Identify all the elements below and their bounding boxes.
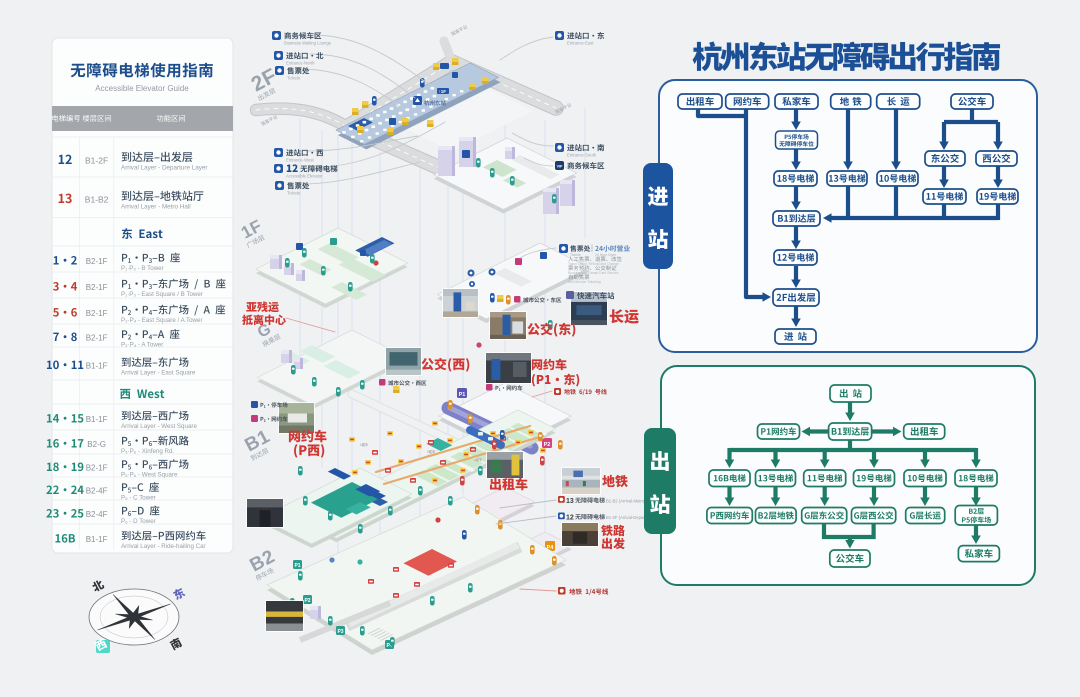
- svg-text:B1-1F: B1-1F: [86, 535, 108, 544]
- svg-text:Arrival Layer - West Square: Arrival Layer - West Square: [121, 423, 197, 430]
- svg-text:B2-1F: B2-1F: [86, 283, 108, 292]
- svg-text:Accessible Elevator: Accessible Elevator: [286, 174, 323, 179]
- svg-text:12: 12: [566, 515, 574, 522]
- svg-text:B1-1F: B1-1F: [86, 362, 108, 371]
- svg-text:Arrival Layer - Ride-hailing C: Arrival Layer - Ride-hailing Car: [121, 543, 206, 550]
- svg-text:P2: P2: [304, 598, 310, 604]
- svg-text:Arrival Layer - East Square: Arrival Layer - East Square: [121, 370, 196, 377]
- svg-text:Tickets: Tickets: [287, 191, 300, 196]
- svg-text:2候车: 2候车: [427, 449, 435, 454]
- svg-text:B2-1F: B2-1F: [86, 334, 108, 343]
- svg-text:Arrival Layer - Metro Hall: Arrival Layer - Metro Hall: [121, 204, 191, 211]
- svg-text:B2-4F: B2-4F: [86, 510, 108, 519]
- svg-text:Business Waiting Lounge: Business Waiting Lounge: [284, 41, 332, 46]
- svg-text:B2-1F: B2-1F: [86, 309, 108, 318]
- svg-text:P₅·P₆ - West Square: P₅·P₆ - West Square: [121, 472, 178, 479]
- svg-text:Entrance·South: Entrance·South: [567, 153, 597, 158]
- svg-text:P₂·P₄ - East Square / A Tower: P₂·P₄ - East Square / A Tower: [121, 317, 203, 324]
- svg-text:Booking and Transit Card Servi: Booking and Transit Card Service: [568, 271, 619, 275]
- svg-text:B2-G: B2-G: [87, 440, 106, 449]
- svg-text:24 Hour Open: 24 Hour Open: [595, 253, 616, 257]
- svg-text:P1: P1: [459, 392, 466, 398]
- svg-text:P1: P1: [294, 563, 300, 569]
- svg-text:Entrance·North: Entrance·North: [286, 61, 315, 66]
- svg-text:Tickets: Tickets: [287, 76, 300, 81]
- svg-text:B1-B2 (Arrival-Metro): B1-B2 (Arrival-Metro): [606, 499, 646, 504]
- svg-text:P₅ - C Tower: P₅ - C Tower: [121, 495, 156, 502]
- svg-text:Arrival Layer - Departure Laye: Arrival Layer - Departure Layer: [121, 165, 207, 172]
- svg-text:Entrance·West: Entrance·West: [286, 158, 314, 163]
- svg-text:P₂·P₄ - A Tower: P₂·P₄ - A Tower: [121, 342, 163, 349]
- svg-text:P₅·P₆ - Xinfeng Rd.: P₅·P₆ - Xinfeng Rd.: [121, 448, 174, 455]
- svg-text:P₁·P₃ - B Tower: P₁·P₃ - B Tower: [121, 265, 164, 272]
- svg-text:VIP: VIP: [557, 165, 563, 169]
- svg-text:↑1F: ↑1F: [439, 89, 447, 94]
- svg-text:P₆ - D Tower: P₆ - D Tower: [121, 518, 156, 525]
- svg-text:13: 13: [566, 498, 574, 505]
- svg-text:B2-1F: B2-1F: [86, 464, 108, 473]
- svg-text:B2-4F: B2-4F: [86, 487, 108, 496]
- svg-text:B2-1F: B2-1F: [86, 257, 108, 266]
- svg-text:P2: P2: [544, 442, 551, 448]
- svg-text:Accessible Elevator Guide: Accessible Elevator Guide: [95, 84, 189, 93]
- svg-text:B1-B2: B1-B2: [85, 195, 109, 205]
- svg-text:Tickets: Tickets: [570, 253, 581, 257]
- svg-text:B1-2F: B1-2F: [85, 156, 108, 166]
- svg-text:P3: P3: [337, 629, 343, 635]
- svg-text:3候车: 3候车: [474, 457, 482, 462]
- svg-text:B1-1F: B1-1F: [86, 415, 108, 424]
- svg-text:Entrance·East: Entrance·East: [567, 41, 594, 46]
- svg-text:1候车: 1候车: [360, 442, 368, 447]
- svg-text:P₁·P₃ - East Square / B Tower: P₁·P₃ - East Square / B Tower: [121, 291, 203, 298]
- svg-text:Self-Service Ticketing: Self-Service Ticketing: [568, 280, 601, 284]
